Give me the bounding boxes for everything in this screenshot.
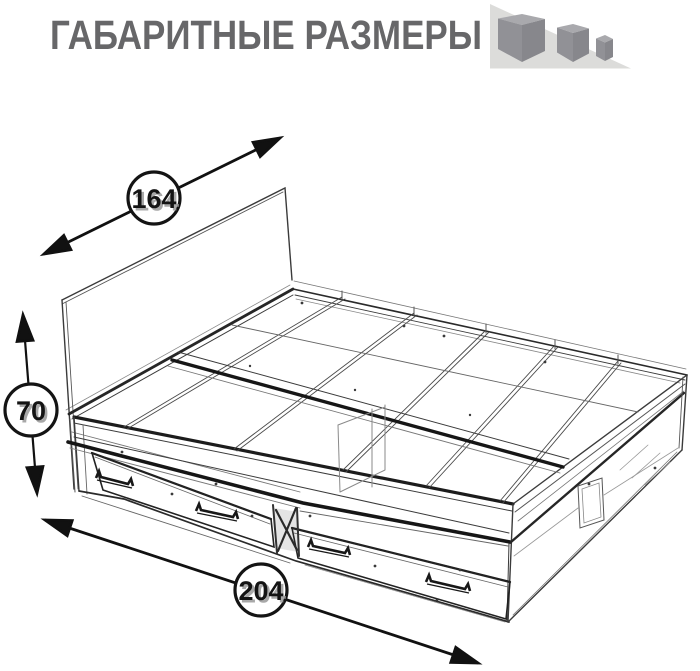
svg-text:70: 70	[16, 396, 46, 426]
svg-text:164: 164	[131, 184, 176, 214]
svg-text:204: 204	[238, 576, 283, 606]
